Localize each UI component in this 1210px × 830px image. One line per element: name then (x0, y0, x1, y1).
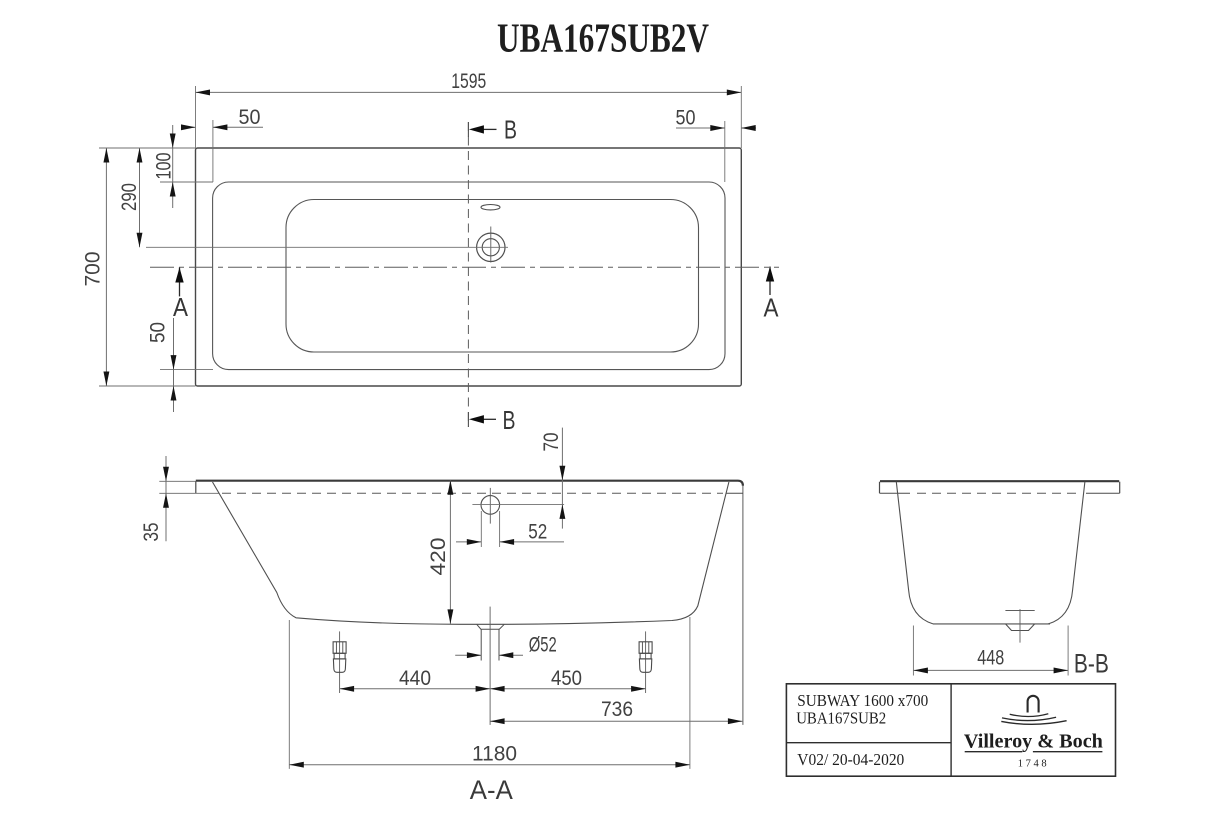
svg-text:SUBWAY 1600 x700: SUBWAY 1600 x700 (797, 691, 928, 710)
svg-text:290: 290 (118, 183, 141, 211)
svg-text:448: 448 (977, 647, 1004, 670)
svg-text:736: 736 (601, 698, 633, 721)
svg-text:UBA167SUB2: UBA167SUB2 (796, 708, 886, 727)
svg-text:B: B (503, 405, 516, 435)
svg-text:50: 50 (147, 322, 170, 343)
svg-text:Ø52: Ø52 (529, 634, 557, 657)
svg-text:V02/ 20-04-2020: V02/ 20-04-2020 (797, 750, 904, 769)
svg-text:35: 35 (140, 523, 163, 542)
svg-text:Villeroy & Boch: Villeroy & Boch (964, 730, 1103, 752)
svg-text:1 7 4 8: 1 7 4 8 (1018, 757, 1047, 769)
svg-text:50: 50 (676, 107, 696, 130)
svg-text:450: 450 (551, 667, 582, 690)
svg-text:1595: 1595 (451, 70, 486, 93)
svg-text:440: 440 (399, 667, 431, 690)
svg-text:70: 70 (540, 433, 563, 452)
svg-text:420: 420 (427, 538, 450, 576)
svg-text:A: A (173, 292, 189, 322)
svg-text:B-B: B-B (1074, 649, 1109, 679)
svg-text:UBA167SUB2V: UBA167SUB2V (497, 15, 709, 61)
svg-text:100: 100 (153, 153, 176, 180)
svg-text:700: 700 (82, 252, 105, 287)
svg-text:B: B (504, 115, 517, 145)
svg-text:50: 50 (239, 106, 261, 129)
svg-text:52: 52 (528, 521, 547, 544)
svg-text:A-A: A-A (470, 775, 513, 805)
svg-text:1180: 1180 (472, 742, 517, 765)
svg-text:A: A (764, 293, 780, 323)
